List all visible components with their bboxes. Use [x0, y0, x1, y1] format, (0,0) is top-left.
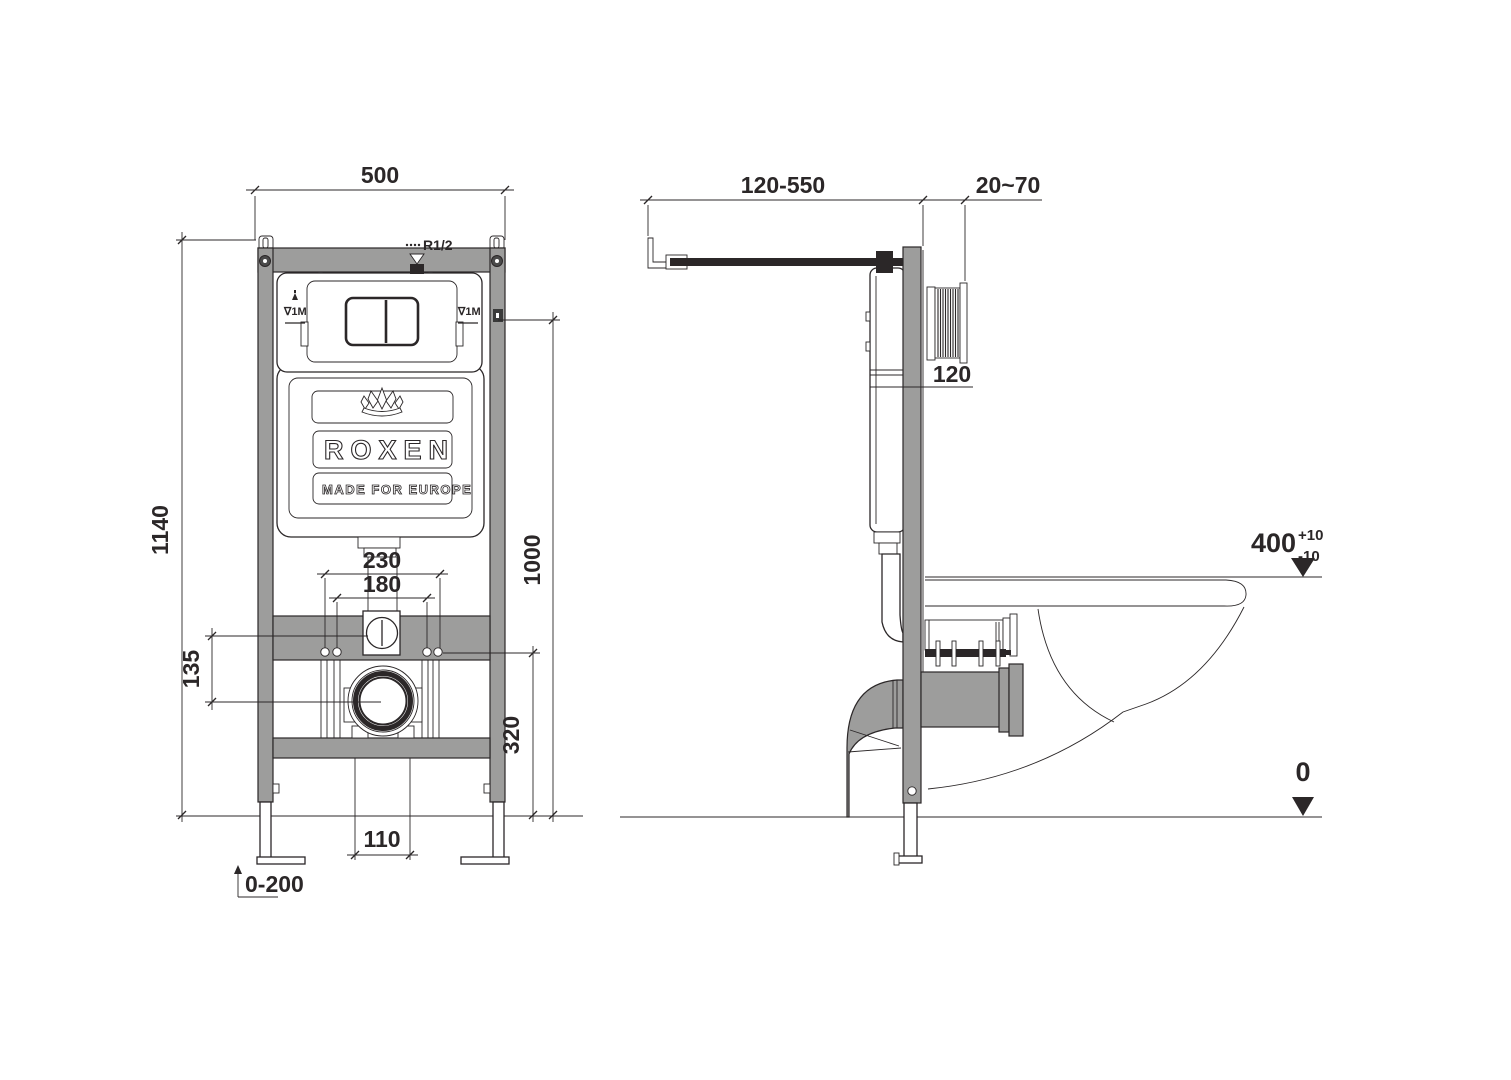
strut-3 — [422, 658, 428, 738]
top-crossbar — [258, 248, 505, 272]
level-mark-left-label: ∇1M — [283, 306, 307, 318]
drain-flange-outer — [1009, 664, 1023, 736]
rim-level-triangle-icon — [1291, 558, 1315, 577]
side-wall-bracket — [648, 238, 903, 273]
drain-pipe-out — [921, 664, 1023, 736]
rim-height-value: 400 — [1251, 528, 1296, 558]
screw-right — [492, 256, 503, 267]
dim-outlet-width: 110 — [347, 816, 418, 860]
dim-outlet-width-value: 110 — [363, 826, 400, 852]
left-leg — [260, 802, 271, 858]
side-neck-upper — [874, 532, 900, 543]
sleeve-cap-inner — [1003, 618, 1010, 652]
left-foot-plate — [257, 857, 305, 864]
supply-connector — [410, 264, 424, 274]
dim-frame-height-value: 1140 — [147, 505, 173, 555]
dim-frame-width: 500 — [246, 162, 514, 240]
floor-level-triangle-icon — [1292, 797, 1314, 816]
dim-frame-depth-value: 120 — [933, 361, 971, 387]
dim-bolt-inner-value: 180 — [363, 571, 401, 597]
shaft-end-plate — [960, 283, 967, 363]
brand-tagline: MADE FOR EUROPE — [322, 482, 472, 497]
rod-washer-4 — [996, 641, 1000, 666]
dim-wall-thickness: 20~70 — [923, 172, 1042, 281]
strut-4 — [433, 658, 439, 738]
flush-clip-left — [301, 322, 308, 346]
floor-level-value: 0 — [1295, 757, 1310, 787]
dim-bracket-range: 120-550 — [640, 172, 927, 246]
side-rail — [903, 247, 921, 803]
side-drain-elbow — [847, 680, 903, 817]
rod-washer-3 — [979, 641, 983, 666]
side-leg — [904, 803, 917, 857]
right-leg — [493, 802, 504, 858]
lower-crossbar — [273, 738, 490, 758]
flush-buttons — [346, 298, 418, 345]
strut-2 — [334, 658, 340, 738]
dim-frame-height: 1140 — [147, 232, 256, 822]
dim-leg-range: 0-200 — [234, 865, 304, 897]
cistern-clip-2 — [866, 342, 870, 351]
technical-drawing-page: ROXEN MADE FOR EUROPE — [0, 0, 1511, 1080]
front-inlet-fitting — [363, 611, 400, 655]
right-foot-plate — [461, 857, 509, 864]
left-rail — [258, 248, 273, 802]
rod-tip — [1006, 650, 1011, 655]
front-flush-plate: ∇1M ∇1M — [277, 273, 482, 372]
dim-drain-height-value: 320 — [498, 716, 524, 754]
flush-shaft-assembly — [927, 283, 967, 363]
dim-wall-thickness-value: 20~70 — [976, 172, 1041, 198]
side-cistern — [866, 268, 905, 642]
side-foot-lip — [894, 853, 899, 865]
rod-washer-1 — [936, 641, 940, 666]
brand-name: ROXEN — [324, 435, 455, 465]
rod-washer-2 — [952, 641, 956, 666]
drain-flange-inner — [999, 668, 1009, 732]
dim-leg-range-value: 0-200 — [245, 871, 304, 897]
side-view: 120-550 20~70 120 400 +10 -10 0 — [620, 172, 1323, 865]
dim-frame-width-value: 500 — [361, 162, 399, 188]
rail-bottom-hole — [908, 787, 916, 795]
rail-foot-clip-left — [273, 784, 279, 793]
shaft-ribs — [938, 289, 958, 357]
dim-inlet-drop-value: 135 — [178, 650, 204, 689]
cistern-clip-1 — [866, 312, 870, 321]
dim-bracket-range-value: 120-550 — [741, 172, 825, 198]
flush-clip-right — [456, 322, 463, 346]
screw-left — [260, 256, 271, 267]
rod-clamp — [876, 251, 893, 273]
front-outlet-box — [355, 758, 410, 816]
side-foot-plate — [896, 856, 922, 863]
strut-1 — [321, 658, 327, 738]
front-view: ROXEN MADE FOR EUROPE — [147, 162, 583, 897]
rim-height-plus: +10 — [1298, 527, 1323, 544]
dim-inlet-height-value: 1000 — [519, 534, 545, 585]
dim-bolt-outer-value: 230 — [363, 547, 401, 573]
drawing-canvas: ROXEN MADE FOR EUROPE — [0, 0, 1511, 1080]
level-mark-right-label: ∇1M — [457, 306, 481, 318]
supply-label: R1/2 — [423, 237, 453, 253]
rim-height-marker: 400 +10 -10 — [1251, 527, 1324, 577]
flush-pipe-elbow — [882, 554, 903, 642]
bracket-rod — [670, 258, 903, 266]
rail-foot-clip-right — [484, 784, 490, 793]
floor-level-marker: 0 — [1292, 757, 1314, 816]
sleeve-cap-outer — [1010, 614, 1017, 656]
side-neck-lower — [879, 543, 897, 554]
shaft-flange — [927, 287, 935, 360]
bowl-connectors — [925, 614, 1017, 666]
